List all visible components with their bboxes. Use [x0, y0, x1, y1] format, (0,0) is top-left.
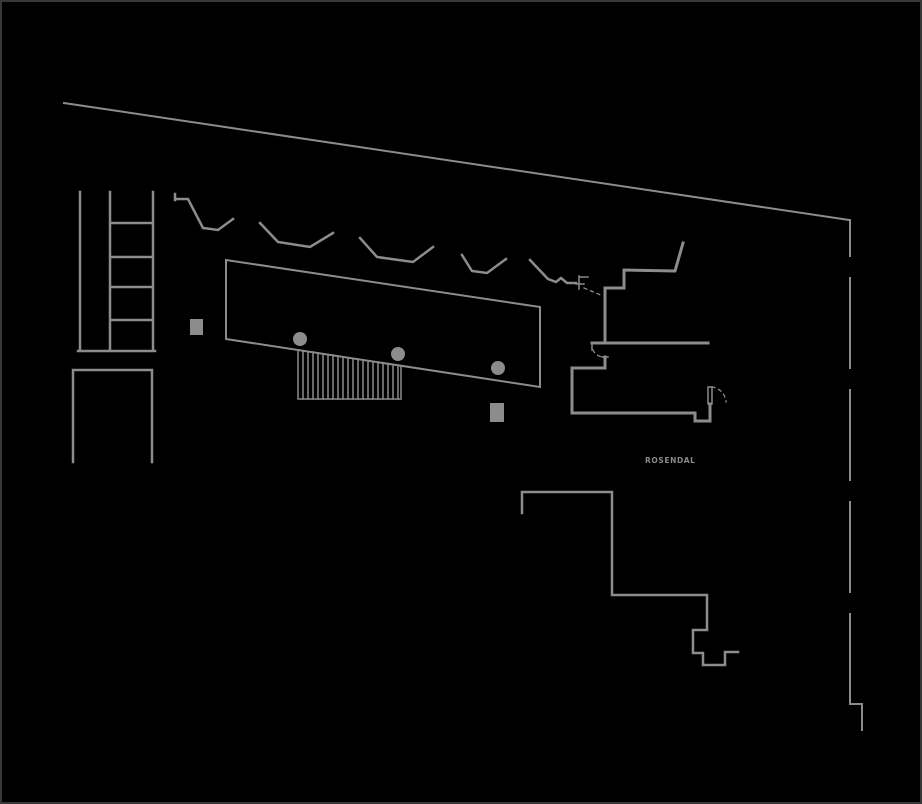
site-plan-canvas[interactable]: ROSENDAL [0, 0, 922, 804]
rosendal-building-outline [572, 357, 710, 421]
column-dot-2 [391, 347, 405, 361]
column-dot-3 [491, 361, 505, 375]
canvas-border [1, 1, 921, 803]
pillar-marker-west [190, 319, 203, 335]
trellis-structure [78, 192, 155, 351]
stepped-path-outline [522, 492, 738, 665]
dashed-boundary-elbow [850, 704, 862, 730]
courtyard-outline [73, 370, 152, 462]
site-plan-viewport[interactable]: ROSENDAL [0, 0, 922, 804]
rosendal-label: ROSENDAL [645, 456, 696, 465]
pillar-marker-east [490, 403, 504, 422]
door-leaf-icon-b [708, 387, 712, 404]
door-leaf-icon-a [592, 343, 608, 357]
door-swing-arc-a [593, 350, 604, 357]
gate-dashed-link [584, 288, 603, 296]
column-dot-1 [293, 332, 307, 346]
door-swing-arc-b [712, 387, 726, 402]
canopy-fringe-line [175, 194, 576, 283]
gate-symbol [576, 276, 588, 289]
north-annex-outline [605, 243, 683, 343]
site-boundary-diagonal-line [64, 103, 849, 220]
